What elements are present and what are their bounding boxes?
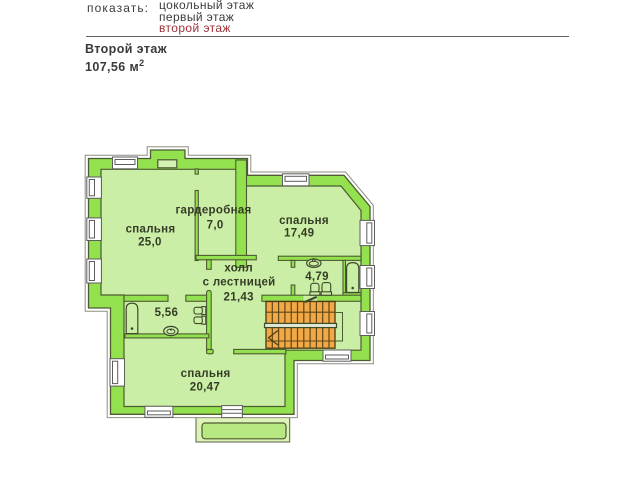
svg-text:21,43: 21,43 [224,292,254,304]
svg-text:4,79: 4,79 [305,271,329,283]
svg-text:20,47: 20,47 [190,381,220,393]
svg-text:5,56: 5,56 [155,307,179,319]
svg-text:спальня: спальня [181,368,231,380]
svg-text:17,49: 17,49 [284,227,314,239]
svg-text:25,0: 25,0 [138,237,162,249]
svg-text:гардеробная: гардеробная [175,205,251,217]
svg-text:7,0: 7,0 [207,220,224,232]
svg-text:спальня: спальня [126,223,176,235]
svg-text:холл: холл [224,262,253,274]
svg-text:спальня: спальня [279,215,329,227]
svg-text:с лестницей: с лестницей [203,277,276,289]
